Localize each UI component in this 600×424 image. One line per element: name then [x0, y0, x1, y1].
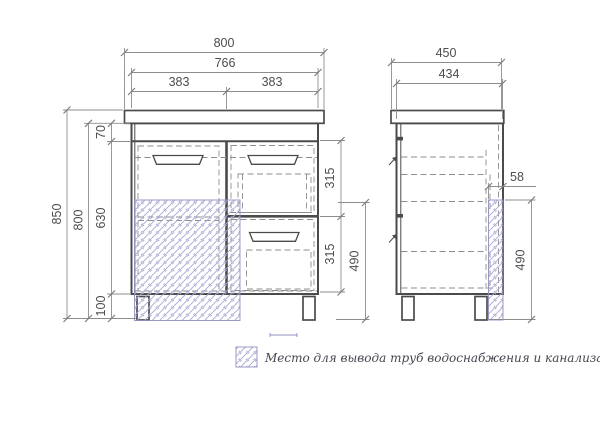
dim-front-body-height: 800: [72, 210, 86, 231]
side-view: [389, 111, 504, 321]
legend: Место для вывода труб водоснабжения и ка…: [236, 333, 600, 367]
dim-side-pipe-zone-height: 490: [514, 250, 528, 271]
cabinet-body-side: [397, 123, 504, 294]
dim-front-legs: 100: [94, 296, 108, 317]
dim-side-body-depth: 434: [439, 67, 460, 81]
countertop-front: [125, 111, 325, 124]
legend-hatch-swatch: [236, 347, 257, 367]
dim-front-body-width: 766: [215, 56, 236, 70]
drawer-handle-top: [248, 156, 298, 165]
front-right-dimensions: 315 315 490: [320, 137, 370, 323]
side-leg-back: [475, 297, 487, 321]
legend-label: Место для вывода труб водоснабжения и ка…: [264, 351, 600, 365]
side-dashed-lines: [402, 125, 499, 293]
dim-front-left-section: 383: [169, 75, 190, 89]
dim-front-top-rail: 70: [94, 125, 108, 139]
dim-front-overall-width: 800: [214, 36, 235, 50]
hinge-bracket-bottom: [397, 214, 404, 218]
side-leg-front: [402, 297, 414, 321]
dim-front-right-section: 383: [262, 75, 283, 89]
front-left-dimensions: 850 800 70 630 100: [50, 107, 136, 323]
pipe-zone-side-hatch: [489, 200, 504, 320]
front-leg-right: [303, 297, 315, 321]
door-handle: [153, 156, 203, 165]
dim-front-drawer-top: 315: [323, 168, 337, 189]
dim-front-overall-height: 850: [50, 204, 64, 225]
vanity-cabinet-drawing: 800 766 383 383 850 800 70 630 100: [0, 0, 600, 424]
pipe-zone-front-hatch: [135, 200, 241, 321]
side-top-dimensions: 450 434: [388, 46, 506, 119]
front-view: [125, 111, 325, 321]
countertop-side: [391, 111, 504, 124]
dim-front-middle: 630: [94, 208, 108, 229]
dim-front-pipe-zone-height: 490: [348, 251, 362, 272]
dim-side-pipe-zone-depth: 58: [510, 170, 524, 184]
dim-side-overall-depth: 450: [436, 46, 457, 60]
hinge-bracket-top: [397, 137, 404, 141]
drawer-handle-bottom: [250, 233, 300, 242]
front-top-dimensions: 800 766 383 383: [121, 36, 328, 109]
dim-front-drawer-bottom: 315: [323, 244, 337, 265]
technical-drawing-page: 800 766 383 383 850 800 70 630 100: [0, 0, 600, 424]
